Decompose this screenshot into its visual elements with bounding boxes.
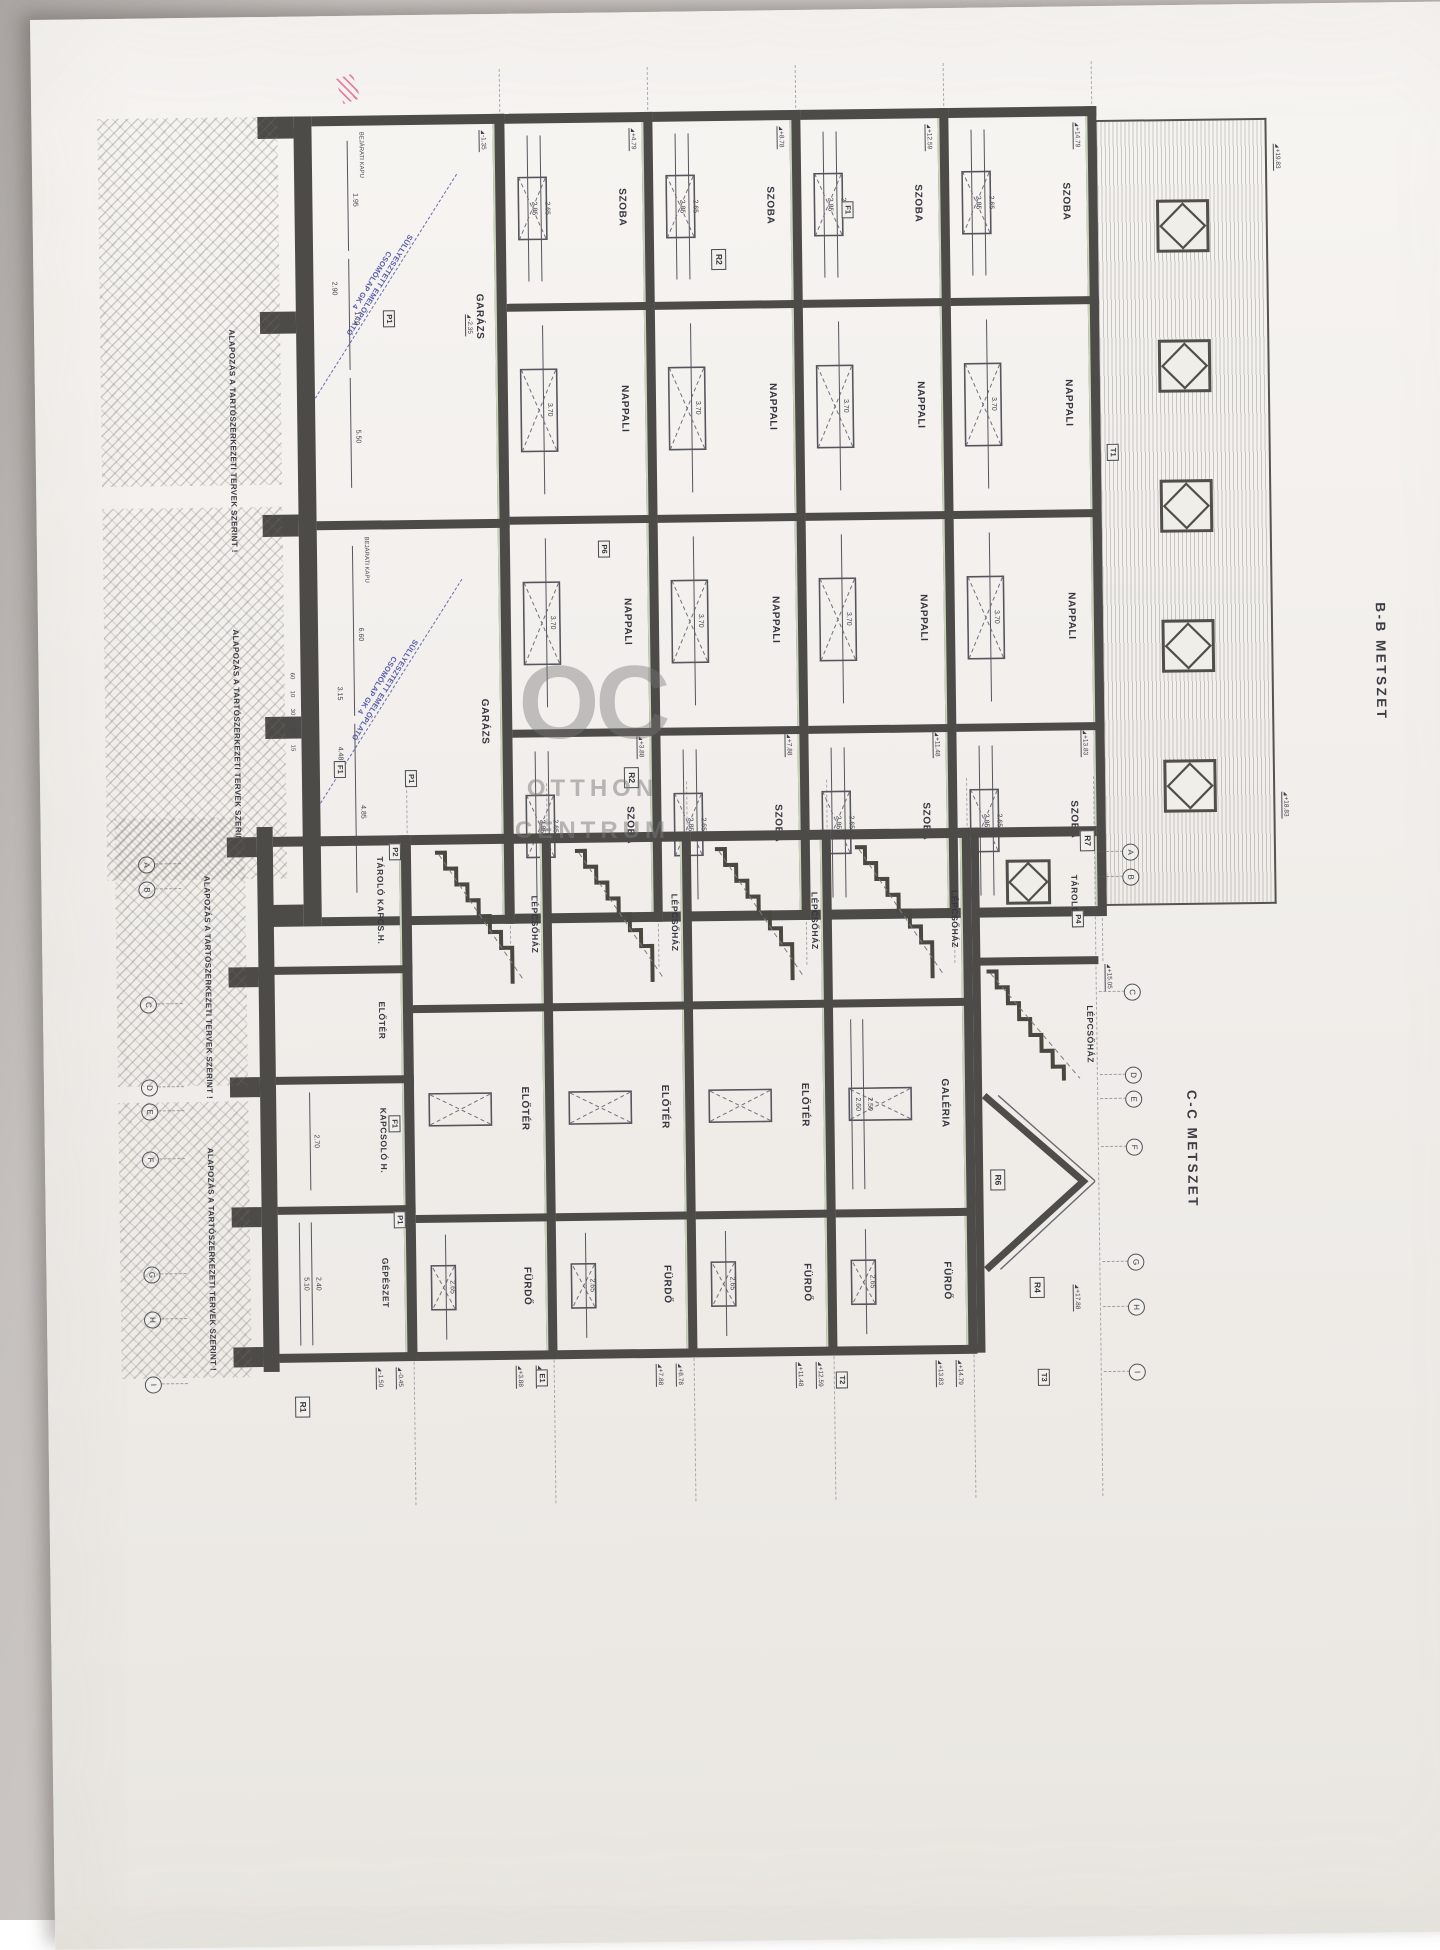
dimension: 2.40 [314,1277,321,1291]
elevation-flag: -1.50 [376,1367,384,1389]
roof-plane [1090,118,1276,906]
watermark: OC OTTHON CENTRUM [505,638,680,852]
roof-diamond-window [1155,199,1210,254]
grid-bubble: I [1129,1364,1146,1381]
room-label: ELŐTÉR [377,1001,387,1039]
wall [507,302,655,312]
section-title-cc: C-C METSZET [1184,1090,1201,1208]
marker-t2: T2 [836,1371,848,1388]
marker-p6: P6 [598,540,610,557]
grid-bubble: B [1122,869,1139,886]
door-x [568,1090,632,1125]
elevation-flag: +7.88 [656,1364,664,1387]
room-label: NAPPALI [619,385,631,432]
marker-t3: T3 [1038,1369,1050,1386]
window-x [520,368,559,452]
elevation-flag: -2.35 [465,314,473,336]
room-label: FÜRDŐ [801,1263,813,1302]
stairs [709,844,811,985]
grid-bubble: I [145,1376,162,1393]
room-label: NAPPALI [918,594,930,641]
wall [837,1345,977,1356]
elevation-flag: +19.83 [1273,144,1281,171]
window-x [668,366,707,450]
grid-leader [1101,1146,1127,1147]
wall [803,298,951,308]
wall [417,1350,557,1361]
elevation-flag: +14.79 [956,1360,964,1387]
watermark-logo: OC [505,638,680,768]
wall-tick: 15 [290,745,296,752]
room-label: GARÁZS [479,699,491,745]
dimension: 5.50 [354,430,361,444]
platform-note: SÜLLYESZTETT EMELŐPLATÓCSOMÓLAP GK 4 [301,568,463,807]
grid-bubble: C [1124,984,1141,1001]
marker-p1: P1 [383,310,395,327]
platform-note: SÜLLYESZTETT EMELŐPLATÓCSOMÓLAP GK 4 [295,163,457,402]
wall [556,1211,696,1221]
marker-f1: F1 [334,761,346,778]
marker-r1: R1 [296,1396,311,1417]
elevation-flag: +8.78 [676,1364,684,1387]
roof-diamond-window [1159,479,1214,534]
grid-bubble: G [1127,1254,1144,1271]
dimension-line [352,546,355,715]
room-label: LÉPCSŐHÁZ [949,890,960,948]
wall [276,1075,414,1085]
dimension: 2.65 [729,1277,736,1291]
door-label: BEJÁRATI KAPU [357,132,364,178]
dimension: 1.95 [351,193,358,207]
grid-bubble: F [1126,1139,1143,1156]
room-label: FÜRDŐ [941,1261,953,1300]
elevation-flag: +17.88 [1073,1284,1081,1311]
window-x [813,172,844,236]
dimension: 2.65 [449,1280,456,1294]
window-x [818,577,857,661]
room-label: TÁROLÓ KAPCS.H. [375,856,386,944]
wall [413,1003,553,1013]
wall [800,108,948,120]
room-label: SZOBA [764,186,775,224]
dimension: 3.15 [336,687,343,701]
grid-bubble: A [1122,844,1139,861]
grid-leader [1103,1306,1129,1307]
room-label: FÜRDŐ [661,1265,673,1304]
wall [836,1208,976,1218]
room-label: NAPPALI [767,383,779,430]
grid-leader [1097,851,1123,852]
grid-bubble: D [1125,1067,1142,1084]
grid-bubble: E [1125,1091,1142,1108]
ground-hatch [118,1101,252,1379]
wall [655,300,803,310]
room-label: NAPPALI [770,596,782,643]
watermark-line2: CENTRUM [505,810,680,852]
wall [416,1213,556,1223]
room-label: NAPPALI [1066,592,1078,639]
dimension: 6.60 [357,628,364,642]
ground-hatch [114,817,247,1087]
room-label: ELŐTÉR [519,1086,531,1130]
room-label: TÁROLÓ [1069,875,1080,915]
floor-slab [399,835,418,1360]
wall [504,112,652,124]
room-label: NAPPALI [915,381,927,428]
grid-leader [1100,1098,1126,1099]
marker-r6: R6 [991,1169,1006,1190]
door-label: BEJÁRATI KAPU [363,537,370,583]
elevation-flag: +4.79 [628,128,636,151]
wall [831,828,971,840]
room-label: FÜRDŐ [521,1267,533,1306]
room-label: SZOBA [1060,182,1071,220]
wall [274,965,412,975]
floor-slab [540,833,558,1358]
room-label: GALÉRIA [939,1078,951,1127]
paper-sheet: B-B METSZET+19.83+18.83T1SZOBA2.652.85NA… [30,1,1440,1950]
room-label: KAPCSOLÓ H. [378,1108,389,1174]
roof-diamond-window [1005,859,1052,906]
grid-leader [1100,1074,1126,1075]
window-x [961,170,992,234]
dimension: 4.48 [337,747,344,761]
dimension-line [347,141,349,251]
dimension: 2.90 [330,282,337,296]
photo-backdrop: B-B METSZET+19.83+18.83T1SZOBA2.652.85NA… [0,0,1440,1920]
grid-leader [1097,876,1123,877]
wall [691,830,831,842]
marker-t1: T1 [1107,444,1119,461]
marker-p2: P2 [389,843,401,860]
watermark-line1: OTTHON [505,768,680,810]
door-x [708,1088,772,1123]
room-label: ELŐTÉR [799,1083,811,1127]
stairs [980,966,1086,1085]
wall [693,1000,833,1010]
wall [951,296,1099,306]
marker-f1: F1 [842,201,854,218]
wall [697,1347,837,1358]
dimension-line [299,1223,302,1346]
marker-f1: F1 [389,1115,401,1132]
grid-leader [1099,991,1125,992]
dimension-line [309,1092,311,1190]
room-label: LÉPCSŐHÁZ [530,895,541,953]
room-label: LÉPCSŐHÁZ [669,894,680,952]
marker-p1: P1 [405,770,417,787]
stairs [849,842,951,983]
dimension: 2.70 [313,1134,320,1148]
wall-tick: 20 [289,727,295,734]
elevation-flag: +11.48 [932,732,940,759]
elevation-flag: -1.35 [478,130,486,152]
elevation-flag: +7.88 [784,734,792,757]
roof-diamond-window [1161,619,1216,674]
wall [510,515,658,525]
wall [311,114,504,127]
dimension: 1.70 [353,311,360,325]
wall [317,519,510,531]
wall [948,106,1096,118]
pink-pen-mark [335,74,360,104]
wall [279,1352,417,1363]
section-cc-drawing: C-C METSZETAABBCCDDEEFFGGHHIITÁROLÓLÉPCS… [100,806,1149,1480]
room-label: ELŐTÉR [659,1085,671,1129]
elevation-flag: +3.88 [516,1366,524,1389]
stairs [429,848,531,989]
elevation-flag: +18.83 [1281,792,1289,819]
grid-leader [1102,1261,1128,1262]
wall [972,956,1098,966]
wall [806,511,954,521]
wall [696,1210,836,1220]
wall [553,1001,693,1011]
elevation-flag: +15.05 [1104,964,1112,991]
roof-diamond-window [1157,339,1212,394]
grid-leader [1104,1371,1130,1372]
room-label: GÉPÉSZET [380,1258,391,1308]
wall [658,513,806,523]
stairs [569,846,671,987]
dimension: 2.65 [868,1275,875,1289]
wall [652,110,800,122]
dimension-line [350,377,352,487]
elevation-flag: +12.59 [816,1362,824,1389]
ground-hatch [97,117,282,487]
wall [833,998,973,1008]
room-label: GARÁZS [474,294,486,340]
room-label: LÉPCSŐHÁZ [1085,1005,1096,1063]
elevation-flag: +11.48 [796,1362,804,1389]
room-label: SZOBA [912,184,923,222]
window-x [517,176,548,240]
elevation-flag: +14.79 [1072,122,1080,149]
marker-e1: E1 [536,1369,548,1386]
marker-r2: R2 [712,249,727,270]
marker-p4: P4 [1072,910,1084,927]
wall [971,826,1097,838]
floor-slab [680,831,698,1356]
door-x [428,1092,492,1127]
dimension: 2.65 [589,1278,596,1292]
marker-r4: R4 [1030,1277,1045,1298]
room-label: NAPPALI [1063,379,1075,426]
window-x [966,575,1005,659]
elevation-flag: +13.83 [936,1360,944,1387]
room-label: LÉPCSŐHÁZ [809,892,820,950]
dimension-line [311,1222,314,1345]
room-label: SZOBA [616,188,627,226]
marker-p1: P1 [394,1211,406,1228]
wall-tick: 10 [289,691,295,698]
wall [557,1348,697,1359]
marker-r7: R7 [1080,830,1095,851]
grid-leader [162,1383,188,1384]
wall-tick: 30 [289,709,295,716]
grid-bubble: H [1128,1299,1145,1316]
dimension: 2.60 [854,1097,861,1111]
section-title-bb: B-B METSZET [1373,602,1390,720]
elevation-flag: -0.45 [396,1367,404,1389]
floor-slab [820,830,838,1355]
elevation-flag: +8.78 [776,126,784,149]
wall [954,509,1102,519]
window-x [964,362,1003,446]
wall-tick: 60 [289,673,295,680]
foundation [257,827,280,1372]
window-x [816,364,855,448]
dimension: 2.50 [866,1097,873,1111]
elevation-flag: +13.83 [1080,730,1088,757]
roof-diamond-window [1163,759,1218,814]
window-x [665,174,696,238]
elevation-flag: +12.59 [924,124,932,151]
dimension: 5.10 [302,1277,309,1291]
